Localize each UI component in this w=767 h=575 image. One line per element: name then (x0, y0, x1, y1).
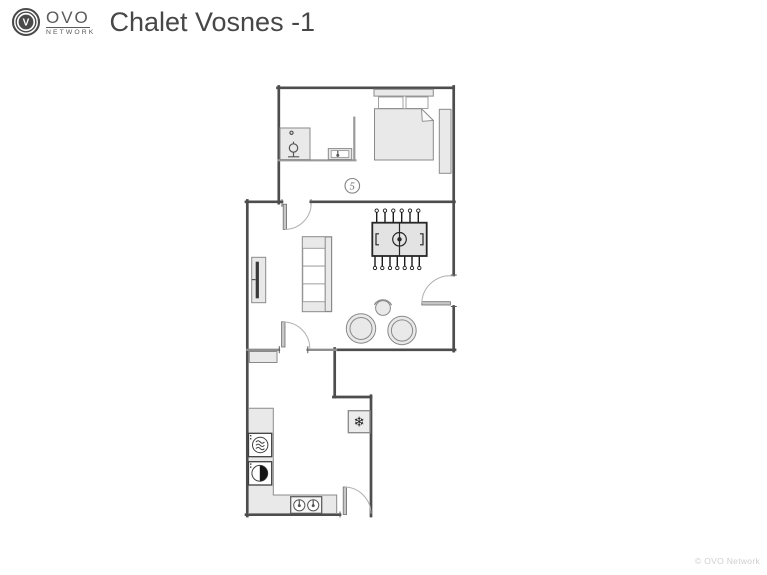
washing-machine (249, 462, 272, 485)
tv-screen (256, 262, 259, 299)
stool (374, 300, 391, 316)
shower (280, 128, 310, 160)
kitchen-sink (291, 497, 322, 514)
radiator (249, 352, 277, 363)
room-number-badge: 5 (345, 179, 360, 194)
freezer: ❄ (348, 411, 370, 433)
room-number: 5 (350, 182, 355, 193)
door-living-to-kitchen (282, 322, 310, 349)
freezer-snowflake-icon: ❄ (354, 415, 365, 431)
door-living-right (422, 276, 454, 305)
floorplan-canvas: 5 (0, 0, 767, 575)
oven (249, 433, 272, 456)
sofa (302, 237, 331, 312)
foosball-table (372, 209, 426, 270)
double-bed (374, 89, 433, 160)
pouf-left (346, 314, 375, 343)
copyright-notice: © OVO Network (695, 556, 760, 566)
door-bedroom (283, 203, 311, 229)
tv-unit (252, 257, 266, 302)
wardrobe (439, 109, 451, 173)
pouf-right (388, 316, 416, 344)
bathroom-sink (328, 149, 351, 160)
door-kitchen-exit (343, 487, 371, 515)
